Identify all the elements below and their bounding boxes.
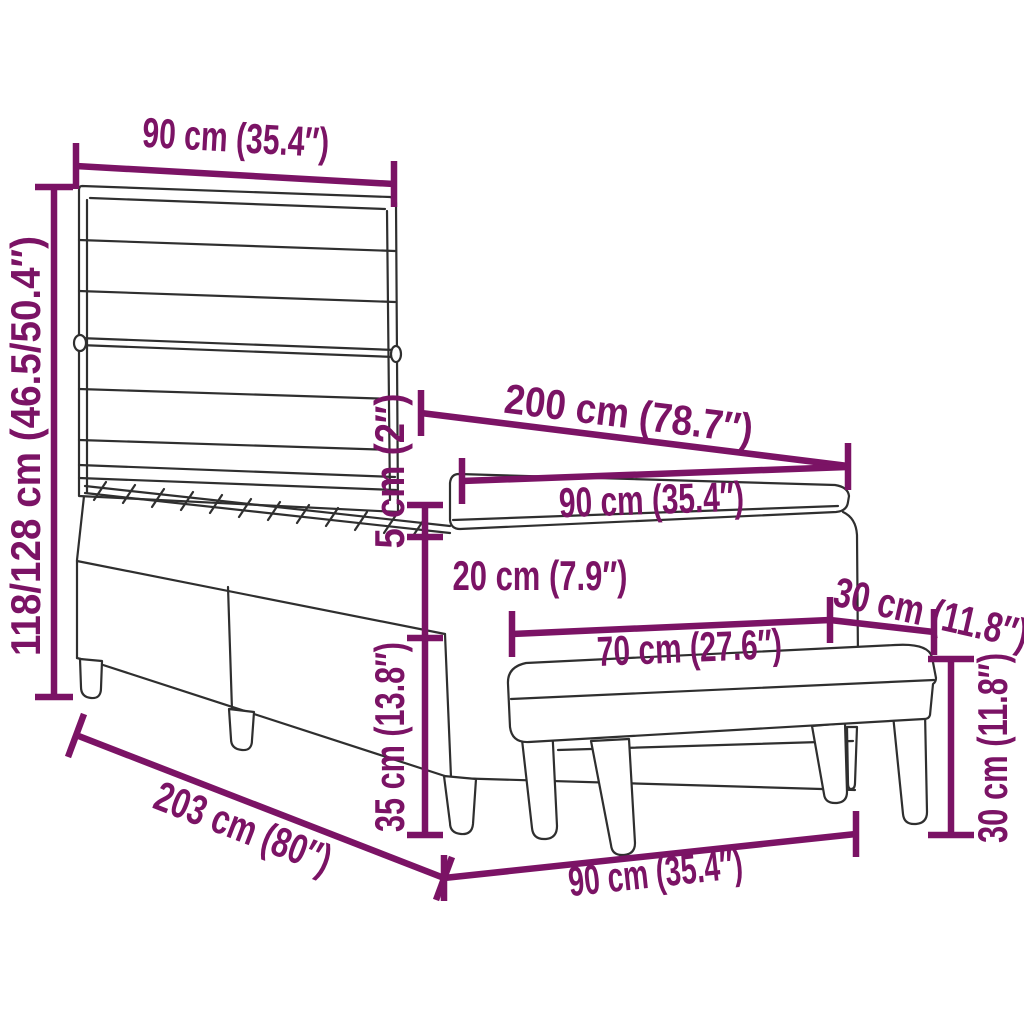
bench-leg-front-right: [893, 712, 927, 824]
bed-leg-front-left: [80, 659, 102, 698]
bed-leg-front-right: [444, 776, 476, 834]
furniture-line-art: [74, 186, 936, 855]
bed-leg-middle: [229, 709, 254, 750]
overall-height-label: 118/128 cm (46.5/50.4″): [2, 236, 49, 656]
mattress-thickness-label: 5 cm (2″): [366, 394, 413, 549]
dim-bench-height: [928, 659, 974, 835]
bench-height-label: 30 cm (11.8″): [969, 653, 1016, 843]
bed-leg-foot: [847, 727, 857, 789]
bench-leg-back-left: [591, 739, 635, 855]
base-with-legs-height-label: 35 cm (13.8″): [366, 642, 413, 832]
bed-dimension-drawing: 90 cm (35.4″) 118/128 cm (46.5/50.4″) 20…: [0, 0, 1024, 1024]
bench-length-label: 70 cm (27.6″): [596, 620, 783, 675]
mattress-width-label: 90 cm (35.4″): [558, 473, 745, 527]
headboard-seam-cap-right: [391, 346, 401, 362]
bench-width-label: 90 cm (35.4″): [566, 840, 745, 905]
frame-length-label: 203 cm (80″): [148, 772, 338, 883]
product-dimension-diagram: 90 cm (35.4″) 118/128 cm (46.5/50.4″) 20…: [0, 0, 1024, 1024]
headboard-width-label: 90 cm (35.4″): [141, 109, 330, 166]
base-height-label: 20 cm (7.9″): [453, 552, 628, 599]
headboard-seam-cap-left: [74, 335, 86, 351]
